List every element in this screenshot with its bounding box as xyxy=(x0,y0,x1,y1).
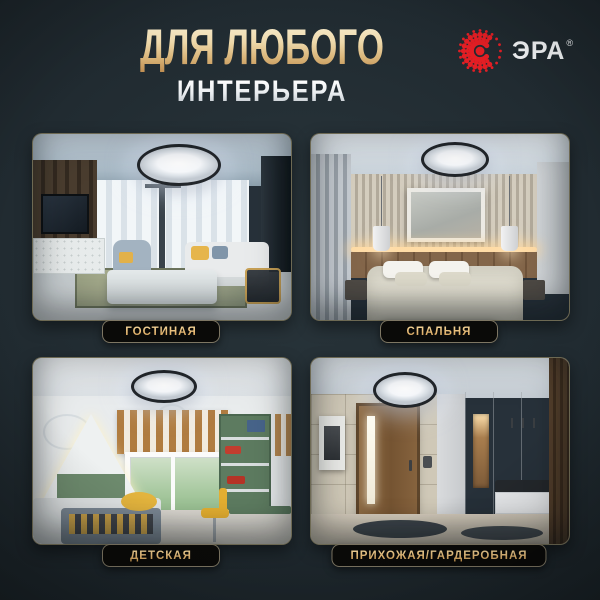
gold-side-table xyxy=(245,268,281,304)
pillow xyxy=(395,272,427,286)
rooms-grid: ГОСТИНАЯ xyxy=(32,133,568,567)
window-post xyxy=(159,184,165,276)
blue-pillow xyxy=(212,246,228,259)
bedroom-photo xyxy=(310,133,570,321)
title-line-1: ДЛЯ ЛЮБОГО xyxy=(79,22,446,72)
toy-car xyxy=(227,476,245,484)
ceiling-lamp xyxy=(421,142,489,177)
room-badge: СПАЛЬНЯ xyxy=(380,320,498,343)
room-label: СПАЛЬНЯ xyxy=(407,326,472,338)
window-bar xyxy=(171,454,175,512)
pendant-lamp xyxy=(373,226,390,251)
toy-car xyxy=(225,446,241,454)
chair-seat xyxy=(201,508,229,518)
room-label: ГОСТИНАЯ xyxy=(125,326,197,338)
era-sunburst-icon xyxy=(456,27,504,75)
door-glass-insert xyxy=(367,416,375,504)
room-label: ПРИХОЖАЯ/ГАРДЕРОБНАЯ xyxy=(350,550,527,562)
room-card-bedroom: СПАЛЬНЯ xyxy=(310,133,568,343)
armchair-pillow xyxy=(119,252,133,263)
era-wordmark: ЭРА® xyxy=(512,37,574,66)
yellow-pillow xyxy=(121,492,157,511)
title-line-2: ИНТЕРЬЕРА xyxy=(39,77,484,107)
pendant-cord xyxy=(509,176,510,228)
wall xyxy=(437,394,465,518)
door-mat xyxy=(461,526,543,540)
hallway-photo xyxy=(310,357,570,545)
tv-screen xyxy=(41,194,89,234)
ottoman xyxy=(107,270,217,304)
pendant-lamp xyxy=(501,226,518,251)
ceiling-lamp xyxy=(131,370,197,403)
ceiling-lamp xyxy=(373,372,437,408)
striped-throw xyxy=(69,514,153,534)
kids-room-photo xyxy=(32,357,292,545)
sideboard xyxy=(33,238,105,274)
room-badge: ДЕТСКАЯ xyxy=(102,544,220,567)
brand-name: ЭРА xyxy=(512,37,565,66)
wood-panel xyxy=(549,358,569,544)
room-card-kids: ДЕТСКАЯ xyxy=(32,357,290,567)
era-logo: ЭРА® xyxy=(456,27,574,75)
room-card-hallway: ПРИХОЖАЯ/ГАРДЕРОБНАЯ xyxy=(310,357,568,567)
wood-niche xyxy=(473,414,489,488)
pillow xyxy=(439,272,471,286)
desk xyxy=(229,506,291,514)
room-card-living-room: ГОСТИНАЯ xyxy=(32,133,290,343)
side-wall xyxy=(537,162,569,294)
light-switch xyxy=(423,456,432,468)
page-title: ДЛЯ ЛЮБОГО ИНТЕРЬЕРА xyxy=(0,22,524,107)
wall-art-print xyxy=(324,426,340,460)
yellow-pillow xyxy=(191,246,209,260)
bench-cushion xyxy=(495,480,551,492)
promo-poster: ДЛЯ ЛЮБОГО ИНТЕРЬЕРА ЭРА® xyxy=(0,0,600,600)
wall-hooks xyxy=(511,418,537,428)
living-room-photo xyxy=(32,133,292,321)
nightstand xyxy=(523,280,545,300)
room-badge: ГОСТИНАЯ xyxy=(102,320,220,343)
door-handle xyxy=(409,460,412,471)
chair-leg xyxy=(213,518,216,542)
room-badge: ПРИХОЖАЯ/ГАРДЕРОБНАЯ xyxy=(331,544,546,567)
registered-mark: ® xyxy=(566,38,574,48)
striped-blind-right xyxy=(275,414,291,456)
pendant-cord xyxy=(381,176,382,228)
room-label: ДЕТСКАЯ xyxy=(130,550,192,562)
toy-box xyxy=(247,420,265,432)
wall-art xyxy=(407,188,485,242)
bench xyxy=(495,492,551,514)
door-mat xyxy=(353,520,447,538)
nightstand xyxy=(345,280,367,300)
ceiling-lamp xyxy=(137,144,221,186)
